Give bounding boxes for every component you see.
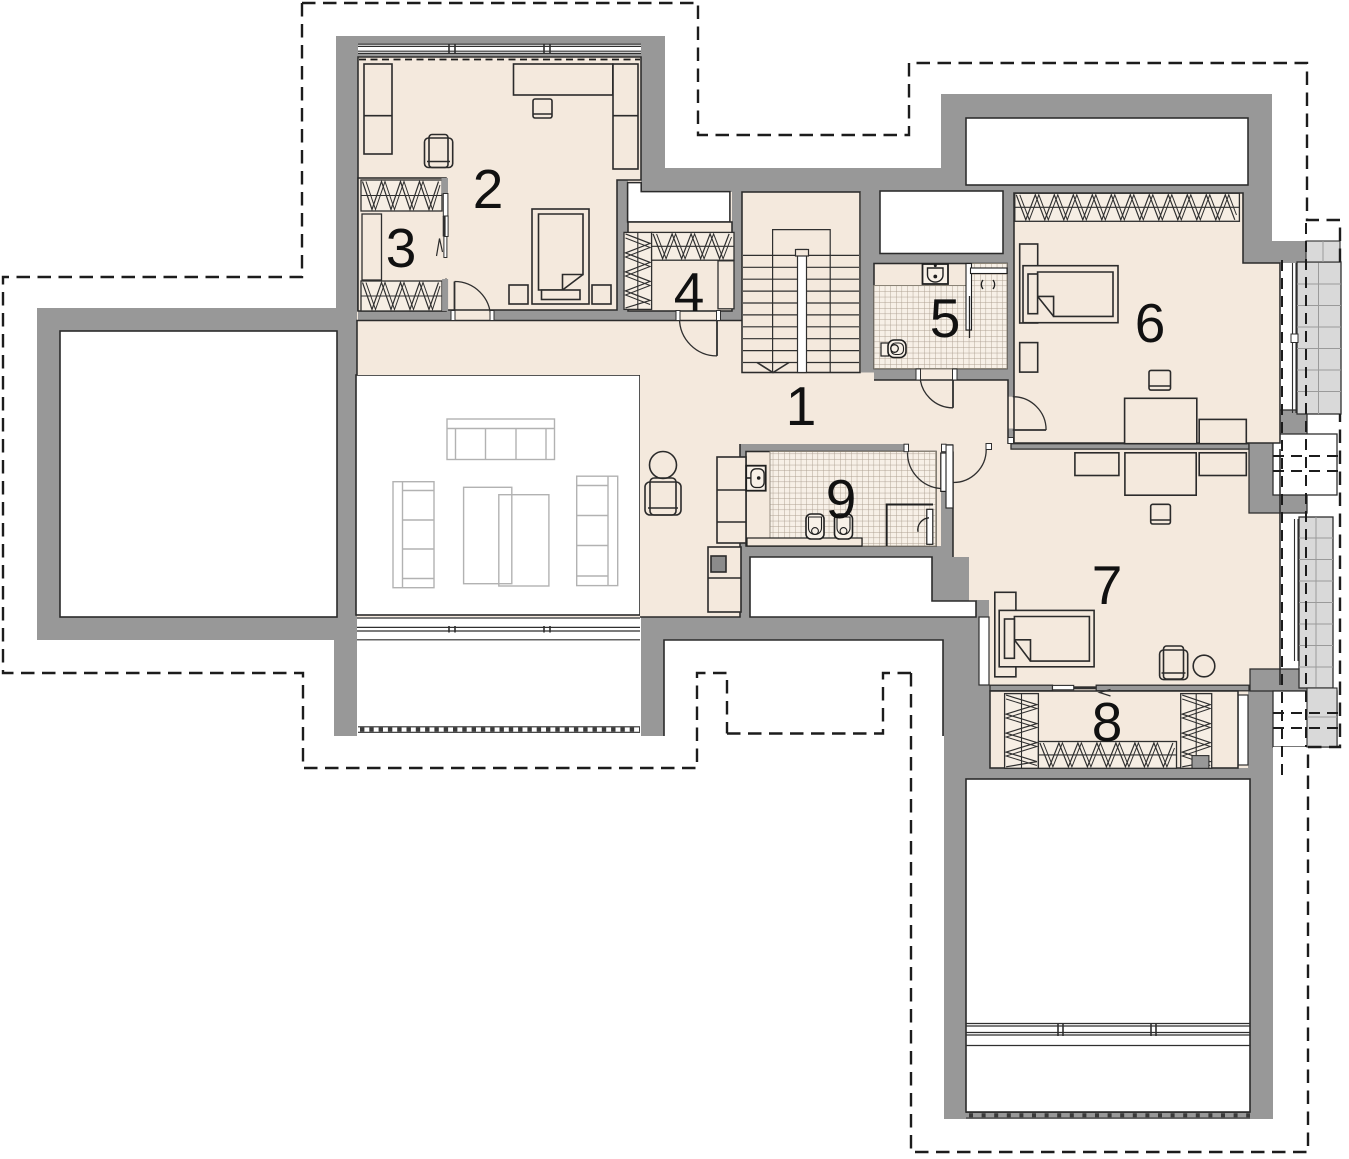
svg-text:2: 2 bbox=[473, 158, 504, 220]
svg-text:9: 9 bbox=[826, 468, 857, 530]
svg-text:7: 7 bbox=[1092, 554, 1123, 616]
svg-text:8: 8 bbox=[1092, 691, 1123, 753]
svg-text:5: 5 bbox=[930, 287, 961, 349]
svg-text:6: 6 bbox=[1135, 292, 1166, 354]
svg-text:1: 1 bbox=[786, 375, 817, 437]
svg-text:3: 3 bbox=[386, 217, 417, 279]
svg-text:4: 4 bbox=[674, 261, 705, 323]
